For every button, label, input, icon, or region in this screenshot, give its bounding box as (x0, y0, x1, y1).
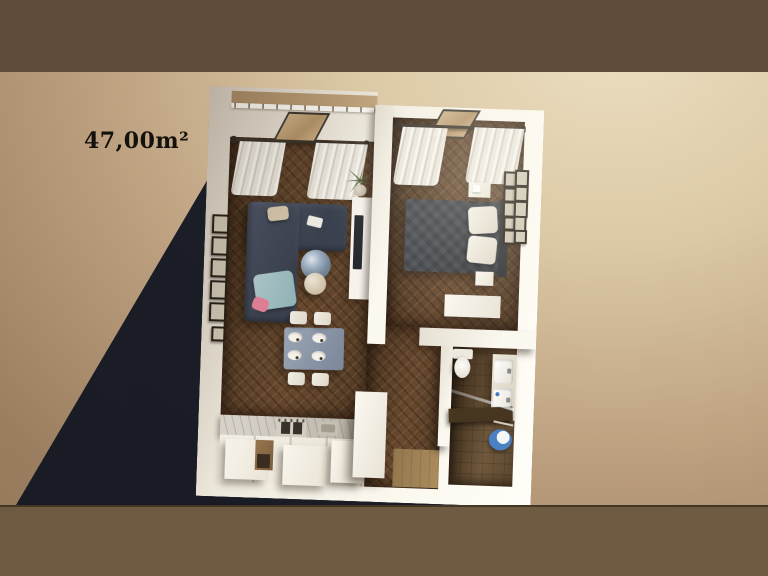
dining-chair (314, 312, 331, 326)
dining-chair (312, 373, 329, 387)
oven (257, 454, 270, 468)
gallery-frame (514, 186, 529, 202)
picture-frame (212, 214, 230, 234)
tissue-box (472, 185, 480, 192)
gallery-frame (514, 230, 527, 244)
letterbox-bottom-bar (0, 505, 768, 576)
picture-frame (210, 280, 228, 300)
living-window (273, 112, 331, 143)
letterbox-top-bar (0, 0, 768, 72)
nightstand (475, 271, 493, 286)
floor-plan-render: 47,00m² (0, 0, 768, 576)
bed-pillow (468, 206, 498, 234)
living-curtain-left (230, 141, 285, 196)
dining-chair (290, 311, 307, 325)
area-label: 47,00m² (84, 128, 189, 154)
entry-mat (392, 449, 439, 489)
apartment-plan (196, 86, 545, 507)
kitchen-cabinet (282, 445, 327, 487)
picture-frame (211, 326, 226, 341)
sink (494, 359, 514, 384)
kitchen-sink (318, 421, 338, 436)
picture-frame (210, 258, 228, 278)
dining-chair (288, 372, 305, 386)
bed-pillow (466, 235, 498, 265)
tv (353, 215, 364, 269)
picture-frame (211, 236, 229, 256)
dresser (444, 294, 501, 318)
picture-frame (209, 302, 227, 322)
gallery-frame (515, 170, 530, 187)
bath-bench (448, 407, 512, 423)
tall-cabinet (352, 391, 387, 478)
sofa-pillow (267, 205, 289, 221)
